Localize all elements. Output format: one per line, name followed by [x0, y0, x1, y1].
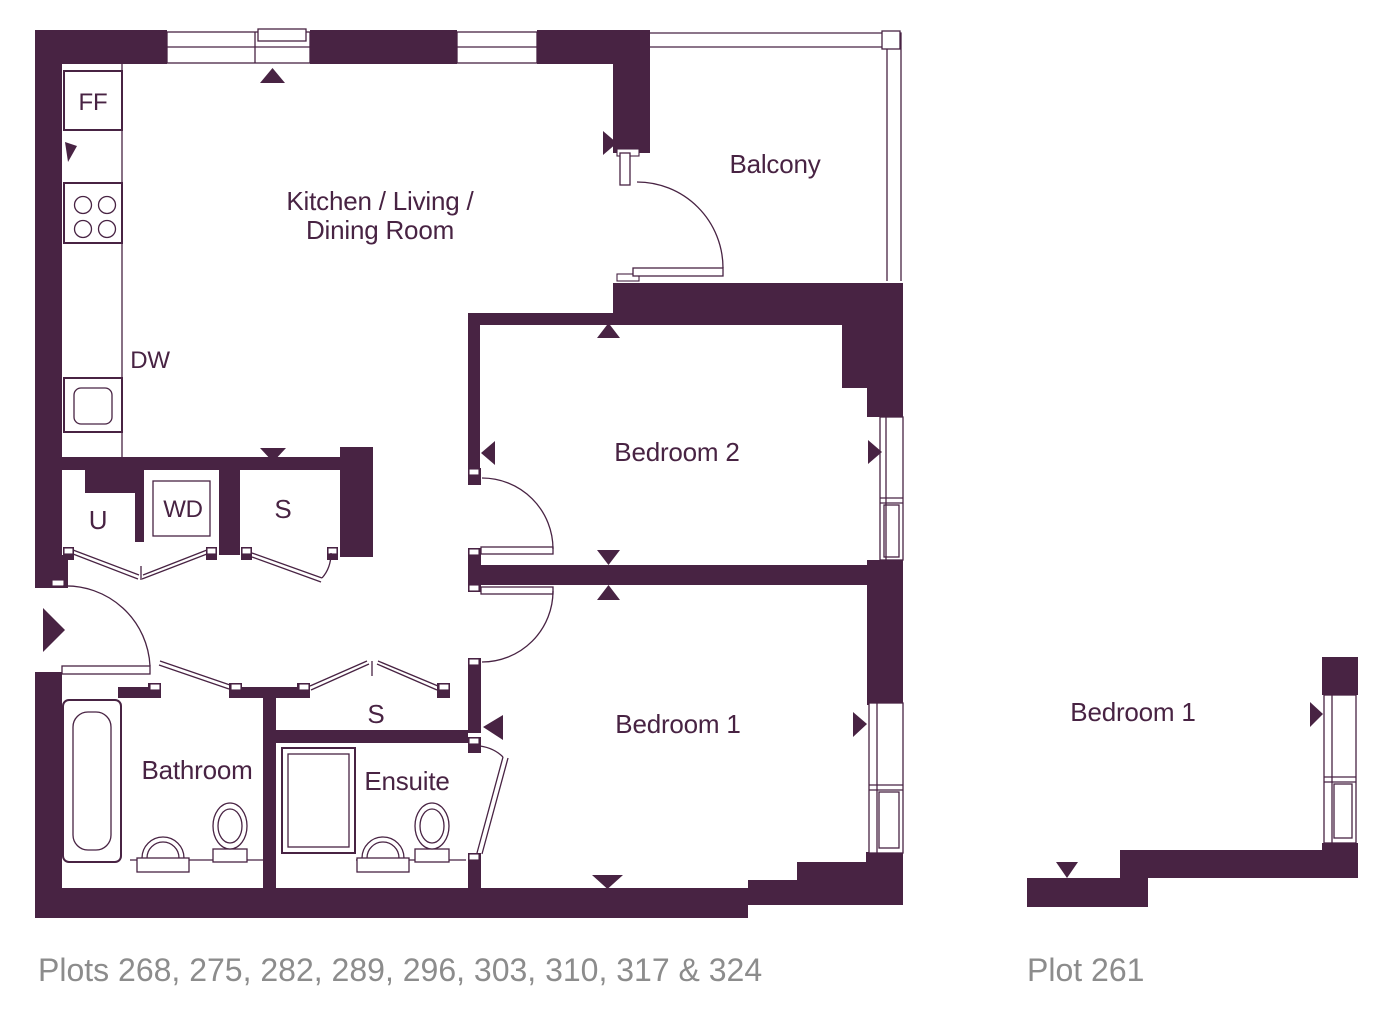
secondary-plan-caption: Plot 261 [1027, 952, 1144, 988]
entrance-door [62, 586, 150, 674]
main-floor-plan: Kitchen / Living / Dining Room Balcony B… [35, 29, 903, 918]
marker-down-icon [597, 550, 620, 565]
marker-left-icon [481, 441, 495, 465]
ensuite-basin [357, 837, 409, 872]
storage-label: S [274, 494, 291, 524]
bedroom2-door [481, 478, 553, 554]
walls [1027, 657, 1358, 907]
bedroom1-label: Bedroom 1 [1070, 697, 1195, 727]
ensuite-door [477, 746, 508, 854]
kitchen-living-dining-label-line2: Dining Room [306, 215, 454, 245]
bathroom-basin [137, 837, 189, 872]
entrance-arrow-icon [43, 608, 65, 652]
kitchen-window [457, 32, 537, 63]
hob [64, 183, 122, 243]
bath [63, 700, 121, 862]
floorplan-drawing: Kitchen / Living / Dining Room Balcony B… [0, 0, 1392, 1017]
floorplan-page: Kitchen / Living / Dining Room Balcony B… [0, 0, 1392, 1017]
marker-up-icon [260, 68, 285, 83]
cupboard-wedge-icon [65, 142, 77, 162]
bedroom1-label: Bedroom 1 [615, 709, 740, 739]
utility-label: U [89, 505, 108, 535]
washer-dryer-label: WD [163, 496, 203, 523]
marker-down-icon [1056, 862, 1078, 878]
main-plan-caption: Plots 268, 275, 282, 289, 296, 303, 310,… [38, 952, 762, 988]
balcony-label: Balcony [729, 149, 820, 179]
balcony-door [620, 153, 723, 276]
kitchen-living-dining-label-line1: Kitchen / Living / [286, 186, 474, 216]
shower [282, 748, 355, 853]
kitchen-sink [64, 378, 122, 432]
bedroom1-window [1324, 695, 1356, 843]
fridge-freezer-label: FF [79, 89, 108, 116]
utility-bifold-doors [73, 550, 207, 580]
living-room-window [167, 29, 310, 63]
marker-up-icon [597, 585, 620, 600]
bathroom-door [159, 661, 230, 689]
bedroom2-window [880, 417, 903, 560]
hall-storage-bifold-doors [310, 661, 438, 690]
bathroom-toilet [213, 803, 247, 862]
bedroom1-door [481, 587, 553, 662]
ensuite-label: Ensuite [364, 766, 449, 796]
dishwasher-label: DW [130, 347, 170, 374]
marker-right-icon [853, 712, 867, 737]
marker-down-icon [592, 875, 623, 889]
hall-storage-label: S [367, 699, 384, 729]
secondary-floor-plan: Bedroom 1 [1027, 657, 1358, 907]
marker-left-icon [483, 715, 503, 740]
bedroom2-label: Bedroom 2 [614, 437, 739, 467]
bedroom1-window [869, 703, 903, 853]
storage-cupboard-door [252, 553, 331, 582]
captions: Plots 268, 275, 282, 289, 296, 303, 310,… [38, 952, 1144, 988]
ensuite-toilet [415, 803, 449, 862]
bathroom-label: Bathroom [141, 755, 252, 785]
marker-right-icon [1310, 702, 1323, 727]
marker-up-icon [597, 323, 620, 338]
